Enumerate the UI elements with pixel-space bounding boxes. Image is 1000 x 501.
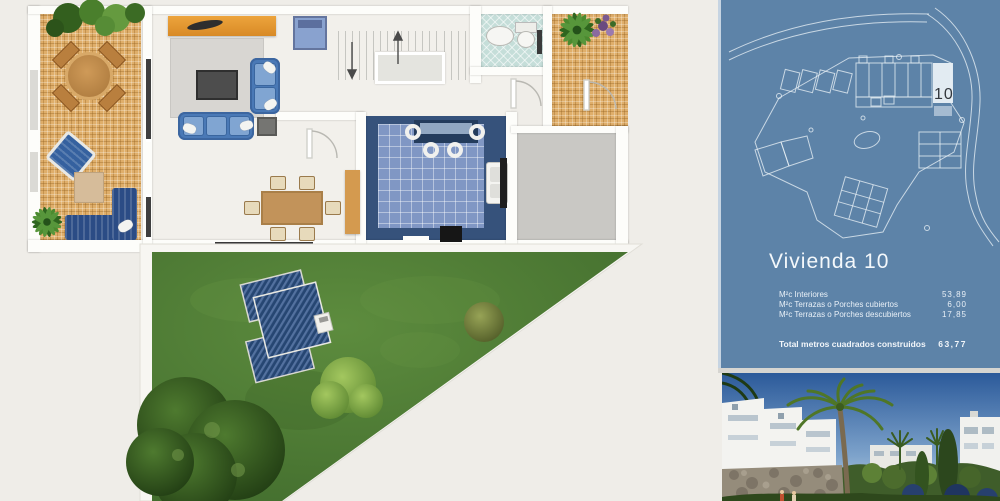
- info-panel: 10 Vivienda 10 M²c Interiores 53,89 M²c …: [718, 0, 1000, 501]
- terrace-shrubs-top: [46, 0, 145, 37]
- info-panel-blue: 10 Vivienda 10 M²c Interiores 53,89 M²c …: [718, 0, 1000, 368]
- total-value: 63,77: [938, 339, 967, 349]
- area-label: M²c Interiores: [779, 290, 828, 300]
- area-label: M²c Terrazas o Porches cubiertos: [779, 300, 898, 310]
- area-label: M²c Terrazas o Porches descubiertos: [779, 310, 911, 320]
- terrace-right-palm-icon: [559, 12, 595, 48]
- stair-arrows: [348, 32, 402, 78]
- terrace-flowers: [592, 15, 616, 38]
- building-photo: [722, 373, 1000, 501]
- unit-title: Vivienda 10: [769, 250, 889, 274]
- area-value: 17,85: [942, 310, 967, 320]
- area-row: M²c Interiores 53,89: [779, 290, 967, 300]
- door-arcs: [307, 79, 616, 158]
- terrace-plant-icon: [32, 206, 63, 237]
- site-plan: 10: [721, 0, 1000, 250]
- brochure-page: 10 Vivienda 10 M²c Interiores 53,89 M²c …: [0, 0, 1000, 501]
- area-row: M²c Terrazas o Porches descubiertos 17,8…: [779, 310, 967, 320]
- unit-number-label: 10: [934, 86, 954, 103]
- area-table: M²c Interiores 53,89 M²c Terrazas o Porc…: [779, 290, 967, 320]
- area-value: 53,89: [942, 290, 967, 300]
- total-label: Total metros cuadrados construidos: [779, 339, 926, 349]
- area-row: M²c Terrazas o Porches cubiertos 6,00: [779, 300, 967, 310]
- terrace-benches: [53, 42, 126, 112]
- sideboard-decor: [187, 18, 224, 32]
- total-row: Total metros cuadrados construidos 63,77: [779, 339, 967, 349]
- garden-bush-right: [464, 302, 504, 342]
- area-value: 6,00: [947, 300, 967, 310]
